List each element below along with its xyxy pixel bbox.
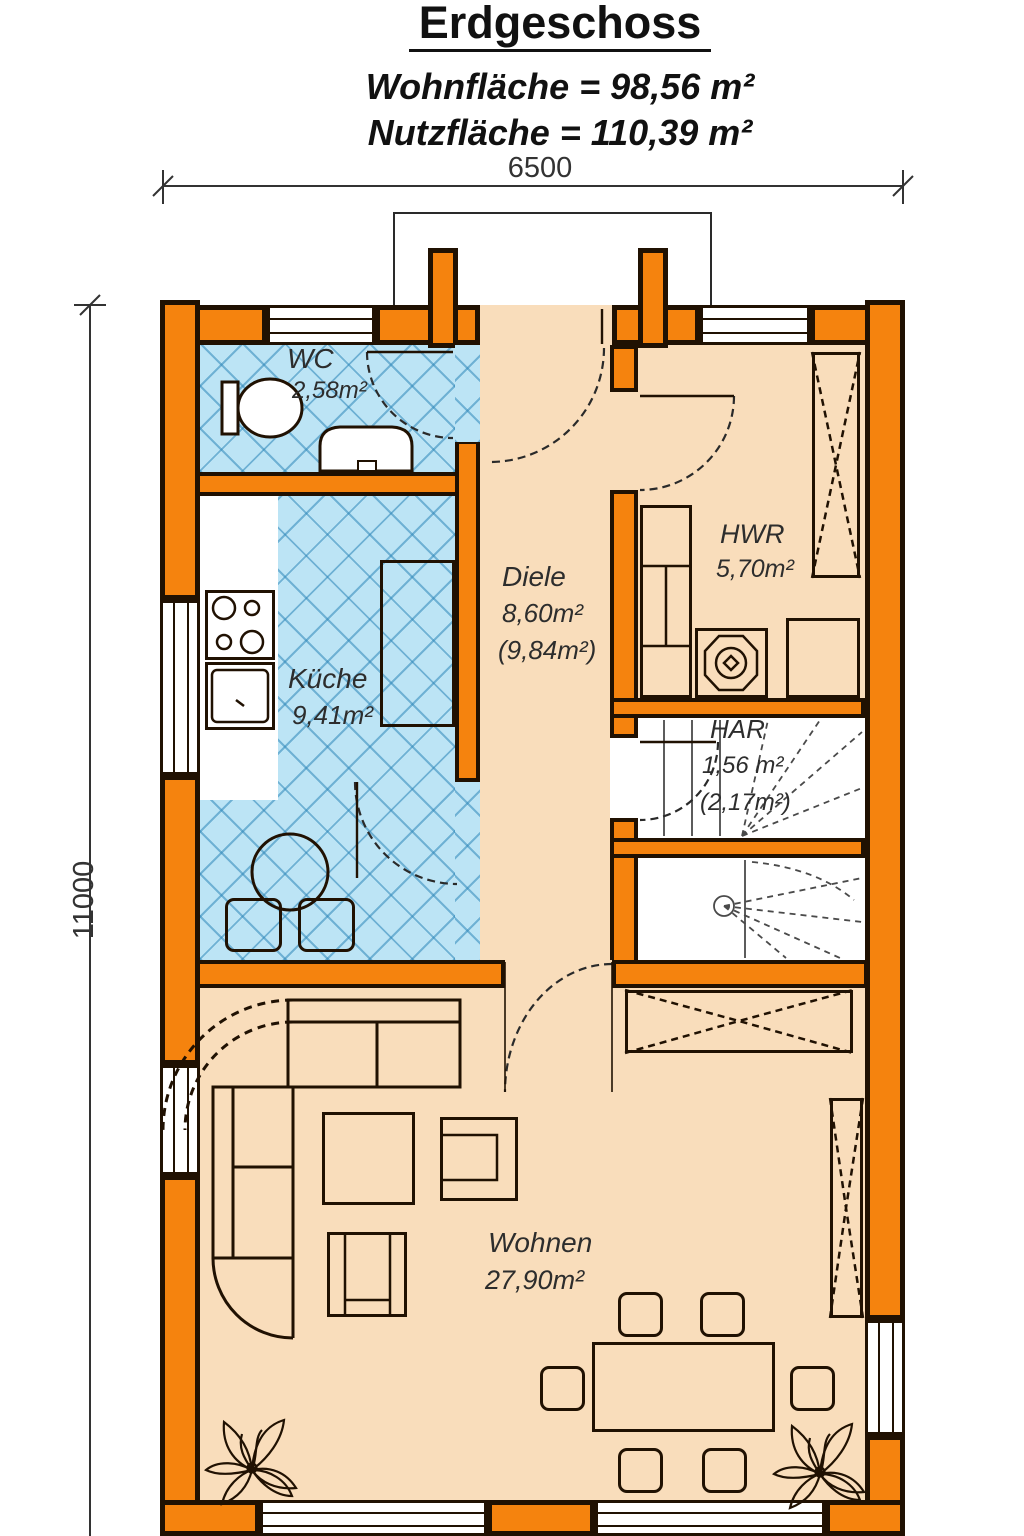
hwr-appliance [786,618,860,698]
dining-chair-1 [618,1292,663,1337]
dimension-depth-label: 11000 [68,845,98,955]
wall-kueche-diele [455,440,480,782]
kitchen-chair-2 [298,898,355,952]
label-har-area: 1,56 m² [702,753,783,778]
label-diele-area: 8,60m² [502,600,583,627]
label-har-area2: (2,17m²) [700,790,791,815]
label-wohnen-area: 27,90m² [485,1266,584,1294]
hwr-tall-cabinet [812,352,860,578]
usable-area-text: Nutzfläche = 110,39 m² [180,112,940,154]
wall-bottom-3 [825,1500,905,1536]
porch-pillar-left [428,248,458,348]
wall-right-1 [865,300,905,1320]
wall-bottom-2 [487,1500,595,1536]
armchair [440,1117,518,1201]
window-top-hwr [700,305,810,345]
dining-chair-4 [790,1366,835,1411]
room-wohnen-floor [200,988,865,1536]
dining-chair-5 [618,1448,663,1493]
wall-wc-kueche [196,472,460,496]
wall-wohnen-right [612,960,868,988]
label-diele: Diele [502,562,566,591]
staircase-floor [638,858,865,962]
washing-machine [695,628,768,698]
label-wc-area: 2,58m² [292,378,367,403]
label-kueche-area: 9,41m² [292,702,373,729]
coffee-table [322,1112,415,1205]
wohnen-sideboard [625,990,853,1053]
kueche-door-zone [455,780,480,962]
wall-left-3 [160,1175,200,1536]
window-bottom-left [260,1500,487,1536]
dining-chair-6 [702,1448,747,1493]
label-diele-area2: (9,84m²) [498,637,596,664]
window-right-wohnen [865,1320,905,1435]
label-wc: WC [287,344,334,373]
window-top-wc [267,305,375,345]
kitchen-chair-1 [225,898,282,952]
window-left-wohnen [160,1065,200,1175]
kitchen-cabinet [380,560,455,727]
label-hwr-area: 5,70m² [716,556,794,582]
hwr-shelf [640,505,692,698]
page-title: Erdgeschoss [360,0,760,52]
entry-threshold [480,305,612,347]
dimension-width-label: 6500 [505,152,575,185]
label-hwr: HWR [720,520,784,548]
wall-wohnen-left [196,960,505,988]
dining-chair-3 [540,1366,585,1411]
wohnen-tall-cabinet [830,1098,863,1318]
door-opening-har [610,738,638,818]
floor-plan-canvas: Erdgeschoss Wohnfläche = 98,56 m² Nutzfl… [0,0,1024,1536]
dining-chair-2 [700,1292,745,1337]
window-bottom-right [595,1500,825,1536]
label-wohnen: Wohnen [488,1228,592,1257]
stove [205,590,275,660]
wall-left-1 [160,300,200,600]
lounge-chair [327,1232,407,1317]
wall-left-2 [160,775,200,1065]
dining-table [592,1342,775,1432]
window-left-kueche [160,600,200,775]
door-opening-wohnen [505,960,612,988]
wall-diele-hwr-a [610,345,638,392]
wall-har-stair [610,838,865,858]
door-opening-hwr [610,392,638,490]
living-area-text: Wohnfläche = 98,56 m² [180,66,940,108]
kitchen-sink [205,662,275,730]
label-kueche: Küche [288,664,367,693]
label-har: HAR [710,716,765,743]
door-opening-wc [455,345,480,442]
wall-bottom-1 [160,1500,260,1536]
porch-pillar-right [638,248,668,348]
